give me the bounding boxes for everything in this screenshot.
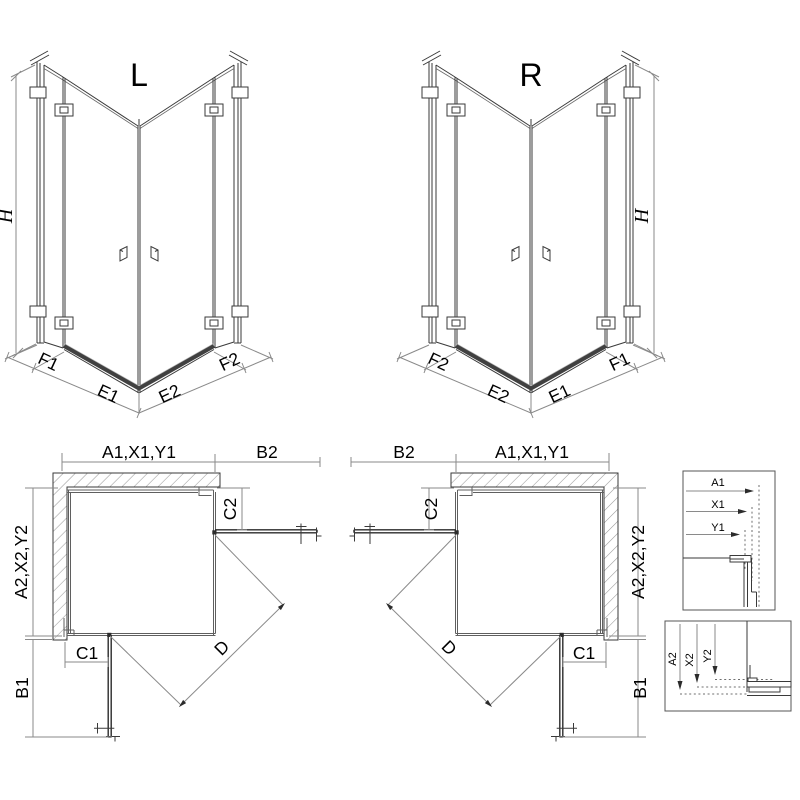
door-hinges <box>55 104 223 329</box>
wall-profile-section <box>730 556 757 608</box>
plan-right-b2-label: B2 <box>393 442 414 462</box>
plan-right-c1-label: C1 <box>573 643 595 663</box>
detail-x2-label: X2 <box>684 653 696 666</box>
iso-left-e1-label: E1 <box>95 380 123 407</box>
plan-left-depth-label: A2,X2,Y2 <box>11 525 31 599</box>
swing-diagonal-dimension <box>110 535 285 707</box>
iso-view-left: L H F1 E1 E2 F2 <box>0 40 280 430</box>
iso-left-title: L <box>130 57 148 93</box>
hatched-wall <box>53 473 220 640</box>
iso-left-height-label: H <box>0 207 17 224</box>
open-door-top <box>212 524 321 545</box>
door-handles <box>120 247 158 262</box>
plan-enclosure-drawing <box>25 453 322 742</box>
wall-outline <box>53 473 220 640</box>
detail-width-box: A1 X1 Y1 <box>680 468 780 613</box>
iso-view-right: R H F2 E2 E1 F1 <box>390 40 670 430</box>
detail-y1-label: Y1 <box>711 522 724 534</box>
detail-a1-label: A1 <box>711 477 724 489</box>
wall-profile-section <box>747 665 791 696</box>
plan-right-width-label: A1,X1,Y1 <box>495 442 569 462</box>
glass-plan-lines <box>64 487 216 637</box>
detail-a2-label: A2 <box>667 652 679 665</box>
iso-right-title: R <box>519 57 542 93</box>
plan-view-right: A1,X1,Y1 B2 A2,X2,Y2 B1 C2 C1 D <box>326 440 671 750</box>
plan-right-b1-label: B1 <box>630 677 650 698</box>
plan-left-b1-label: B1 <box>12 677 32 698</box>
plan-right-depth-label: A2,X2,Y2 <box>628 525 648 599</box>
plan-left-width-label: A1,X1,Y1 <box>102 442 176 462</box>
top-width-dimension <box>62 453 320 472</box>
iso-right-height-label: H <box>631 207 653 224</box>
threshold-rail <box>64 344 214 389</box>
technical-drawing-sheet: L H F1 E1 E2 F2 R H F2 E2 E1 F1 <box>0 0 800 800</box>
plan-left-b2-label: B2 <box>256 442 277 462</box>
detail-depth-box: A2 X2 Y2 <box>662 618 794 716</box>
plan-view-left: A1,X1,Y1 B2 A2,X2,Y2 B1 C2 C1 D <box>0 440 345 750</box>
detail-x1-label: X1 <box>711 499 724 511</box>
iso-left-e2-label: E2 <box>156 380 184 407</box>
hatched-wall <box>451 473 618 640</box>
plan-left-c1-label: C1 <box>76 643 98 663</box>
iso-right-e1-label: E1 <box>546 380 574 407</box>
detail-border <box>683 471 775 610</box>
plan-right-c2-label: C2 <box>421 498 441 520</box>
plan-left-c2-label: C2 <box>220 498 240 520</box>
detail-y2-label: Y2 <box>702 649 714 662</box>
plan-left-d-label: D <box>210 636 233 659</box>
plan-right-d-label: D <box>438 636 461 659</box>
iso-right-f2-label: F2 <box>425 348 452 375</box>
